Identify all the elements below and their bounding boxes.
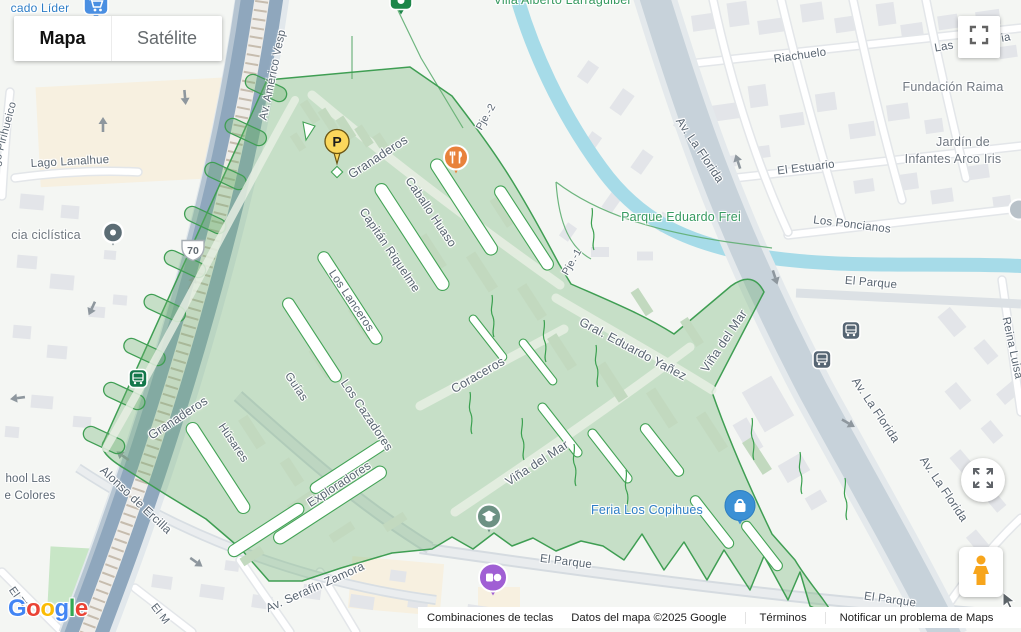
expand-arrows-icon [971, 466, 995, 495]
satellite-button[interactable]: Satélite [111, 16, 222, 61]
cycling-poi-dot-marker[interactable] [99, 217, 127, 254]
attribution-bar: Combinaciones de teclas Datos del mapa ©… [418, 607, 1021, 628]
google-logo[interactable]: Google [8, 595, 88, 623]
edge-poi-circle-marker [1007, 198, 1021, 227]
google-logo-letter: o [40, 595, 54, 622]
bus-stop-marker[interactable] [840, 320, 862, 347]
fullscreen-icon [969, 25, 989, 50]
map-type-control: Mapa Satélite [14, 16, 222, 61]
feria-los-copihues-pin-marker[interactable] [722, 484, 758, 533]
expand-view-button[interactable] [961, 458, 1005, 502]
map-button[interactable]: Mapa [14, 16, 111, 61]
shopping-purple-pin-marker[interactable] [476, 557, 510, 604]
fullscreen-button[interactable] [958, 16, 1000, 58]
google-logo-letter: G [8, 595, 26, 622]
svg-text:70: 70 [187, 245, 199, 257]
bus-stop-marker[interactable] [811, 349, 833, 376]
map-canvas[interactable] [0, 0, 1021, 632]
google-logo-letter: o [26, 595, 40, 622]
parking-pin-marker[interactable]: P [322, 128, 352, 173]
school-pin-marker[interactable] [473, 498, 505, 541]
pegman-icon [968, 553, 994, 592]
google-logo-letter: e [75, 595, 88, 622]
map-data-text: Datos del mapa ©2025 Google [571, 612, 726, 624]
google-map[interactable]: Mapa Satélite Combinaciones de teclas Da… [0, 0, 1021, 632]
terms-link[interactable]: Términos [745, 612, 807, 624]
bus-stop-green-marker[interactable] [127, 368, 149, 395]
restaurant-pin-marker[interactable] [441, 140, 471, 181]
villa-poi-pin-marker[interactable] [388, 0, 414, 23]
google-logo-letter: g [55, 595, 69, 622]
report-problem-link[interactable]: Notificar un problema de Maps [825, 612, 994, 624]
keyboard-shortcuts-link[interactable]: Combinaciones de teclas [427, 612, 553, 624]
pegman-button[interactable] [959, 547, 1003, 597]
svg-text:P: P [332, 134, 341, 150]
route-70-shield-marker: 70 [179, 238, 207, 269]
